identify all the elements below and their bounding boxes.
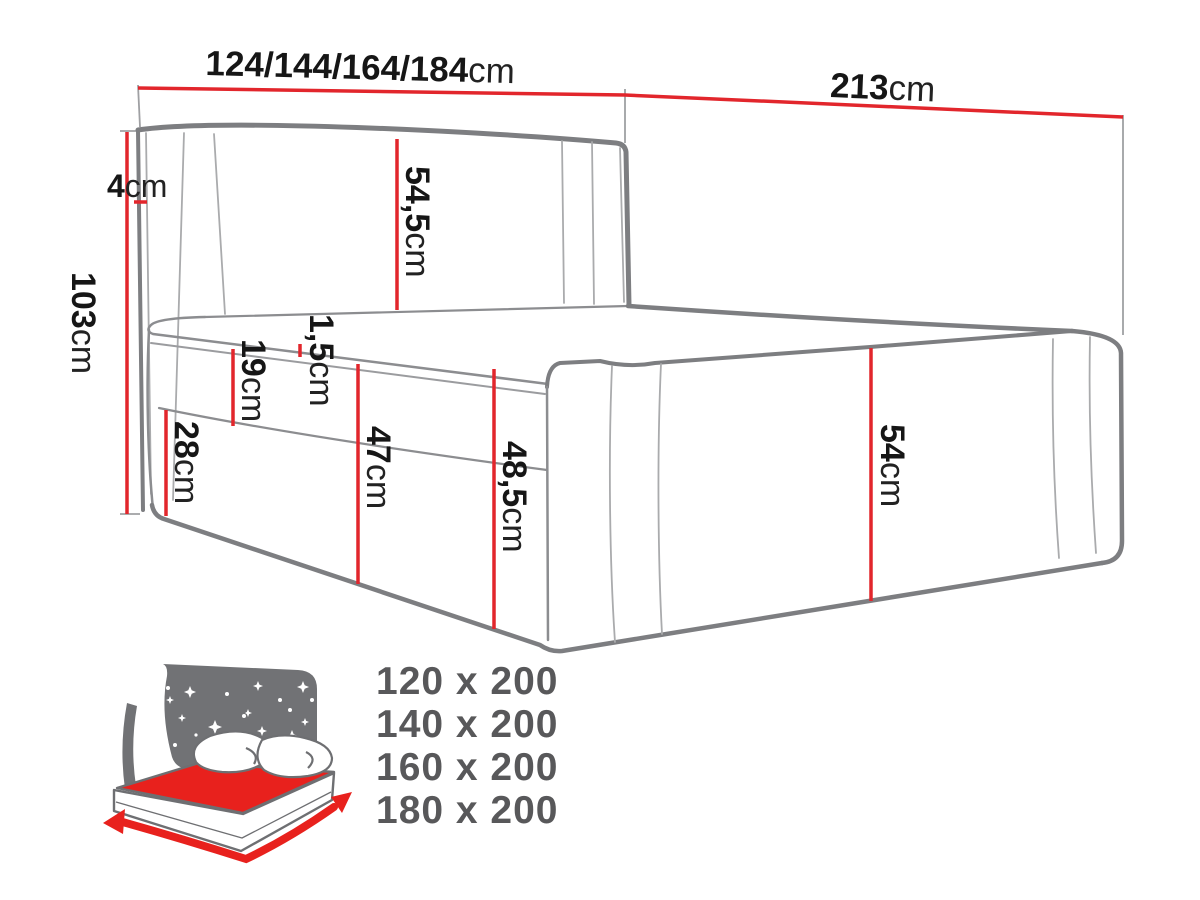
dim-mattress-lip-label: 1,5cm [304, 314, 338, 407]
size-item: 160 x 200 [376, 746, 559, 789]
bed-line-drawing [138, 125, 1122, 651]
dim-mattress-height-label: 19cm [236, 339, 270, 422]
dim-side-height-label: 47cm [361, 426, 395, 509]
size-item: 140 x 200 [376, 703, 559, 746]
size-item: 120 x 200 [376, 660, 559, 703]
bed-dimension-diagram: 124/144/164/184cm 213cm 103cm 4cm 54,5cm… [0, 0, 1200, 900]
dim-length-label: 213cm [829, 68, 935, 108]
dim-length-value: 213 [829, 66, 889, 108]
dim-width-label: 124/144/164/184cm [205, 46, 515, 89]
dim-total-height-label: 103cm [66, 272, 100, 374]
dim-side-total-height-label: 48,5cm [497, 441, 531, 553]
available-sizes-list: 120 x 200 140 x 200 160 x 200 180 x 200 [376, 660, 559, 832]
extension-lines [120, 85, 1123, 514]
dim-foot-height-label: 54cm [875, 424, 909, 507]
mattress-and-base [148, 306, 1122, 651]
dim-width-value: 124/144/164/184 [205, 44, 469, 90]
dim-line-width-length [138, 88, 1123, 117]
storage-bed-icon [103, 664, 352, 859]
dim-base-height-label: 28cm [169, 421, 203, 504]
dim-headboard-thickness-label: 4cm [107, 170, 167, 202]
size-item: 180 x 200 [376, 789, 559, 832]
dim-headboard-height-label: 54,5cm [400, 166, 434, 278]
